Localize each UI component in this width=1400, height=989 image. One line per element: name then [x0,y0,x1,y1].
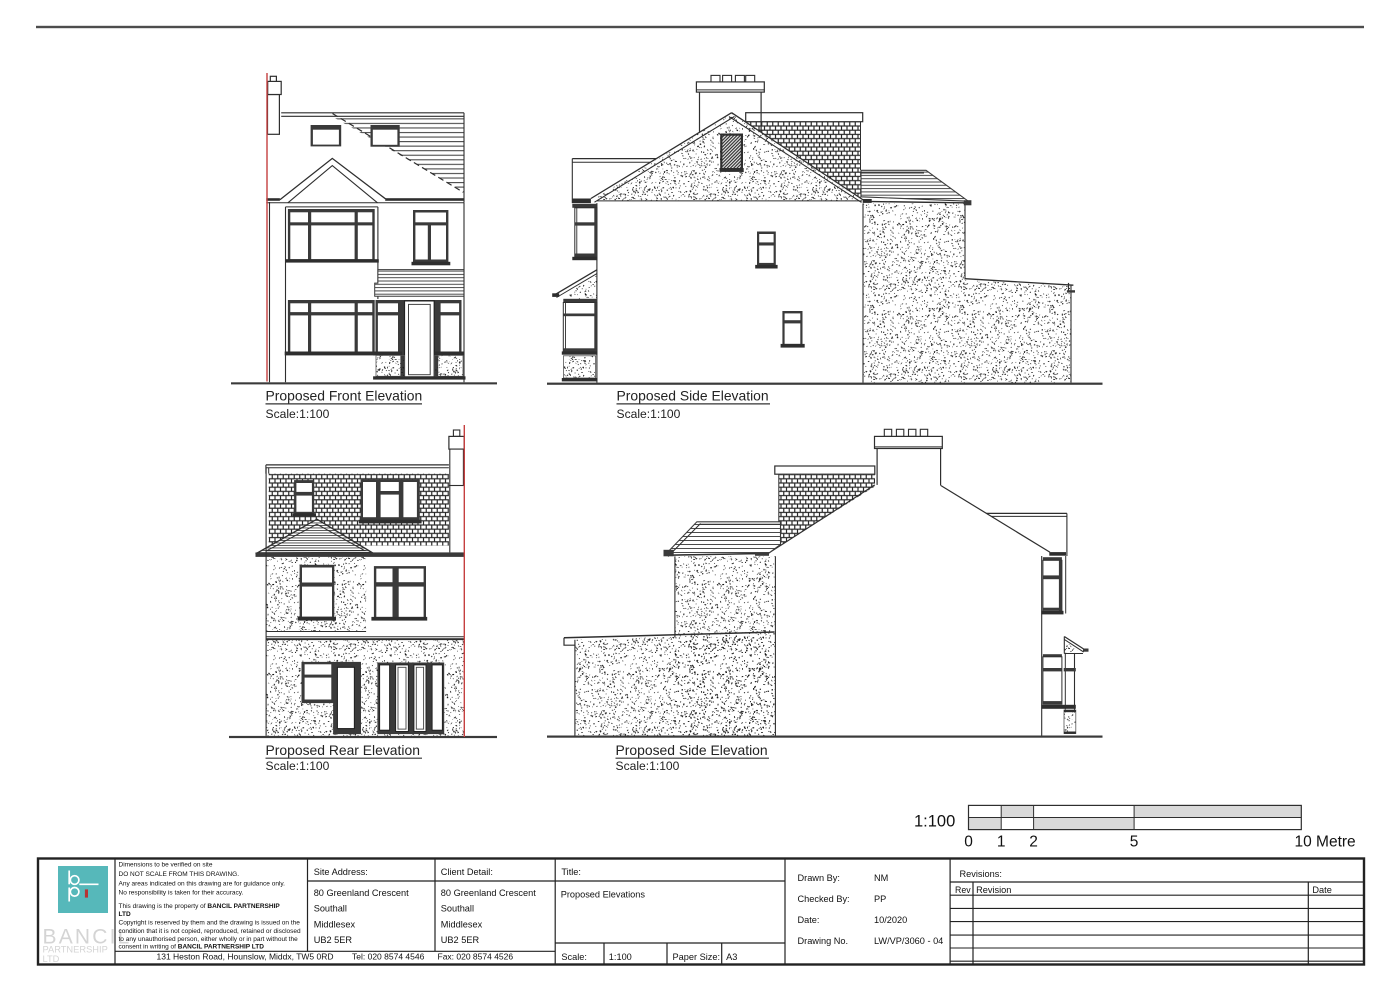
svg-text:NM: NM [874,873,888,883]
svg-text:UB2 5ER: UB2 5ER [441,935,480,945]
svg-text:to any unauthorised person, ei: to any unauthorised person, either wholl… [119,936,299,943]
svg-text:10 Metre: 10 Metre [1295,834,1356,851]
svg-text:Scale:1:100: Scale:1:100 [617,407,681,421]
svg-text:A3: A3 [726,952,737,962]
svg-text:LTD: LTD [43,954,60,964]
svg-text:consent in writing of BANCIL P: consent in writing of BANCIL PARTNERSHIP… [119,944,265,951]
svg-text:80 Greenland Crescent: 80 Greenland Crescent [441,888,536,898]
svg-text:Middlesex: Middlesex [441,919,483,929]
svg-text:Scale:1:100: Scale:1:100 [266,759,330,773]
svg-text:Dimensions to be verified on s: Dimensions to be verified on site [119,862,213,869]
svg-text:Fax: 020 8574 4526: Fax: 020 8574 4526 [438,951,514,961]
svg-text:Copyright is reserved by them: Copyright is reserved by them and the dr… [119,920,301,927]
svg-text:Drawing No.: Drawing No. [798,936,849,946]
svg-text:Proposed Elevations: Proposed Elevations [561,890,646,900]
svg-text:Proposed Side Elevation: Proposed Side Elevation [616,742,768,758]
svg-text:Southall: Southall [314,904,347,914]
svg-text:No responsibility is taken for: No responsibility is taken for their acc… [119,890,244,897]
svg-text:0: 0 [964,834,973,851]
svg-text:Rev: Rev [955,885,971,895]
svg-text:Proposed Rear Elevation: Proposed Rear Elevation [266,742,420,758]
svg-text:LTD: LTD [119,911,131,918]
svg-text:Tel: 020 8574 4546: Tel: 020 8574 4546 [352,951,425,961]
svg-text:Revision: Revision [976,885,1011,895]
svg-text:1:100: 1:100 [914,813,955,831]
svg-text:Drawn By:: Drawn By: [798,873,840,883]
svg-text:Any areas indicated on this dr: Any areas indicated on this drawing are … [119,880,286,887]
svg-text:Revisions:: Revisions: [960,869,1002,879]
svg-text:Scale:1:100: Scale:1:100 [266,407,330,421]
svg-text:1: 1 [997,834,1006,851]
svg-text:Scale:1:100: Scale:1:100 [616,759,680,773]
svg-text:2: 2 [1029,834,1038,851]
svg-text:5: 5 [1130,834,1139,851]
svg-text:LW/VP/3060 - 04: LW/VP/3060 - 04 [874,936,943,946]
svg-text:131 Heston Road, Hounslow, Mid: 131 Heston Road, Hounslow, Middx, TW5 0R… [157,951,334,961]
svg-text:Proposed Front Elevation: Proposed Front Elevation [266,388,423,404]
svg-text:10/2020: 10/2020 [874,915,907,925]
svg-text:Southall: Southall [441,904,474,914]
svg-text:condition that it is not copie: condition that it is not copied, reprodu… [119,928,301,935]
svg-text:Date:: Date: [798,915,820,925]
svg-text:DO NOT SCALE FROM THIS DRAWING: DO NOT SCALE FROM THIS DRAWING. [119,871,240,878]
svg-text:This drawing is the property o: This drawing is the property of BANCIL P… [119,903,281,910]
svg-text:1:100: 1:100 [609,952,632,962]
svg-text:Paper Size:: Paper Size: [673,952,721,962]
svg-text:80 Greenland Crescent: 80 Greenland Crescent [314,888,409,898]
svg-text:Date: Date [1312,885,1331,895]
svg-text:PP: PP [874,894,886,904]
svg-text:Middlesex: Middlesex [314,919,356,929]
svg-text:Proposed Side Elevation: Proposed Side Elevation [617,388,769,404]
svg-text:Client Detail:: Client Detail: [441,867,493,877]
svg-text:Scale:: Scale: [561,952,587,962]
svg-text:Site Address:: Site Address: [314,867,368,877]
svg-text:Title:: Title: [561,867,581,877]
svg-text:Checked By:: Checked By: [798,894,850,904]
svg-text:UB2 5ER: UB2 5ER [314,935,353,945]
